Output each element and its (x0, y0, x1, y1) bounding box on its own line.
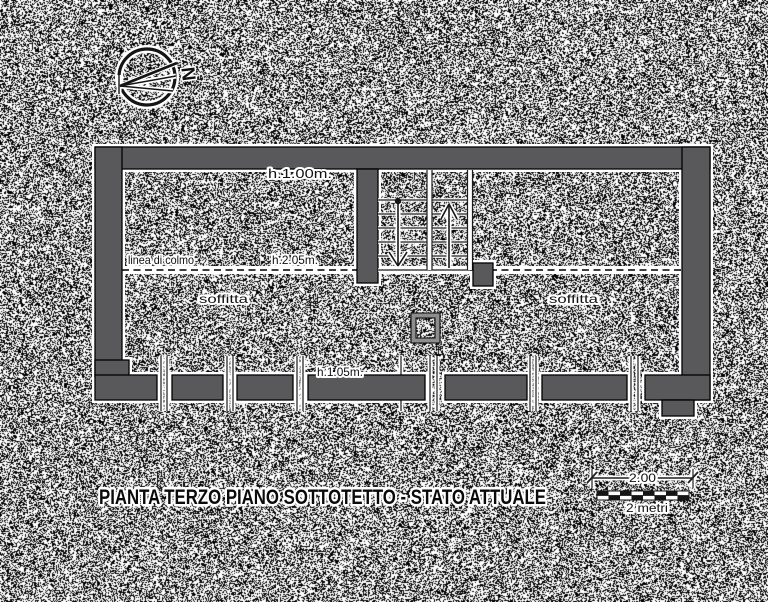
bottom-wall-segment (95, 375, 157, 400)
scale-stripes (597, 491, 689, 500)
floor-plan-canvas: h.1.00m. linea di colmo h.2.05m. soffitt… (0, 0, 768, 602)
bottom-wall-segment (172, 375, 223, 400)
staircase (378, 170, 473, 270)
chimney-protrusion (662, 400, 694, 416)
outer-wall-right (682, 147, 710, 400)
label-height-bottom: h.1.05m. (317, 365, 363, 379)
pillar (473, 263, 493, 286)
label-height-ridge: h.2.05m. (272, 253, 318, 267)
outer-wall-left (95, 147, 122, 376)
stair-side-wall (357, 169, 378, 283)
north-label: N (176, 66, 199, 82)
stair-arrow-up-icon (441, 204, 457, 268)
bottom-wall-segment (542, 375, 627, 400)
scale-dimension-value: 2.00 (629, 473, 656, 485)
bottom-wall-segment (445, 375, 527, 400)
drawing-sheet: h.1.00m. linea di colmo h.2.05m. soffitt… (0, 0, 768, 602)
label-height-top: h.1.00m. (268, 166, 332, 181)
bottom-wall-segment (237, 375, 293, 400)
label-soffitta-left: soffitta (199, 292, 248, 306)
scale-caption: 2 metri (626, 503, 668, 515)
compass-rose: N (119, 49, 199, 105)
shaft-symbol (411, 313, 440, 343)
stair-divider (427, 170, 433, 270)
bottom-wall-segment (645, 375, 710, 400)
label-soffitta-right: soffitta (549, 292, 598, 306)
walls (95, 147, 710, 416)
stair-right-wall (467, 170, 473, 270)
scale-bar: 2.00 2 metri (587, 469, 698, 515)
stair-arrow-down-icon (389, 198, 407, 266)
label-ridge-line: linea di colmo (128, 253, 194, 267)
sheet-title: PIANTA TERZO PIANO SOTTOTETTO - STATO AT… (99, 486, 546, 509)
outer-wall-top (95, 147, 710, 169)
